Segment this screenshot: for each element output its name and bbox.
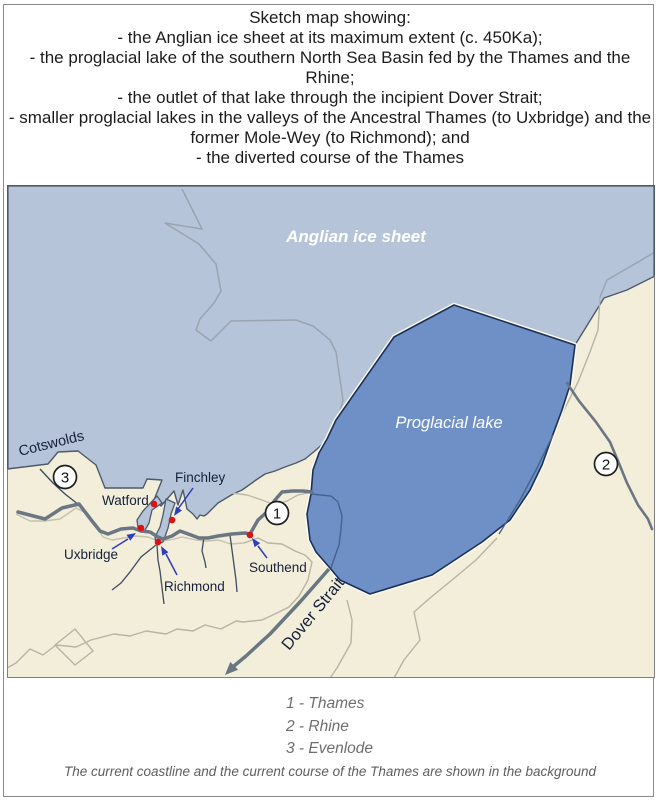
svg-text:Finchley: Finchley [175,470,226,485]
svg-text:Southend: Southend [249,560,307,575]
svg-text:Anglian ice sheet: Anglian ice sheet [285,227,427,246]
svg-text:Uxbridge: Uxbridge [64,547,118,562]
svg-text:Proglacial lake: Proglacial lake [395,414,502,432]
svg-text:3: 3 [61,470,69,487]
svg-text:Richmond: Richmond [164,579,225,594]
svg-text:Watford: Watford [102,493,149,508]
svg-text:2: 2 [602,457,610,474]
svg-text:1: 1 [273,506,281,523]
